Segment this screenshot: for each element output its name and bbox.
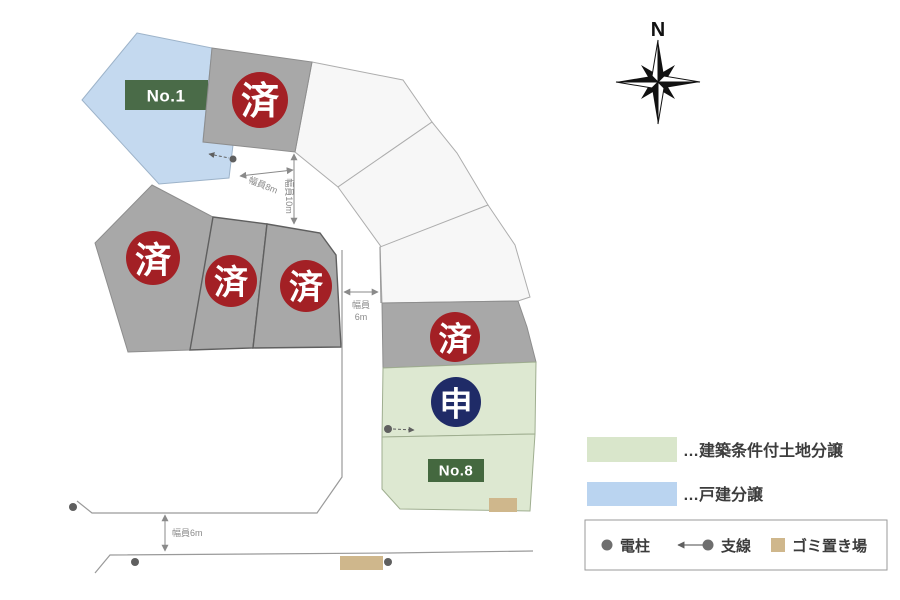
legend-wire-pole-icon [703,540,714,551]
dim-label-6m-bottom: 幅員6m [172,527,203,538]
legend-green-label: …建築条件付土地分譲 [683,441,844,460]
sold-label: 済 [214,264,249,302]
no1-label: No.1 [147,87,186,106]
utility-pole-icon [384,558,392,566]
legend-swatch-green [587,437,677,462]
legend-blue-label: …戸建分譲 [683,485,764,504]
sold-label: 済 [241,81,280,123]
compass-north-label: N [651,19,665,41]
utility-pole-icon [384,425,392,433]
legend-swatch-blue [587,482,677,506]
legend: …建築条件付土地分譲 …戸建分譲 電柱 支線 ゴミ置き場 [585,437,887,570]
compass-rose-icon [616,40,700,124]
legend-pole-label: 電柱 [620,537,650,555]
utility-pole-icon [131,558,139,566]
sold-badge-left-large: 済 [126,231,180,285]
legend-garbage-label: ゴミ置き場 [792,537,867,555]
sold-badge-mid-2: 済 [280,260,332,312]
applied-label: 申 [440,386,473,423]
legend-pole-icon [602,540,613,551]
applied-badge: 申 [431,377,481,427]
legend-garbage-icon [771,538,785,552]
dim-label-6m-mid-line2: 6m [355,312,368,322]
utility-pole-icon [230,156,237,163]
dim-label-10m: 幅員10m [284,178,295,214]
sold-badge-right: 済 [430,312,480,362]
utility-pole-icon [69,503,77,511]
legend-wire-label: 支線 [720,537,751,555]
plot-map-page: No.1 No.8 幅員8m 幅員10m 幅員 6m 幅員6m 済 済 済 済 [0,0,900,600]
sold-label: 済 [135,240,171,281]
plot-map: No.1 No.8 幅員8m 幅員10m 幅員 6m 幅員6m 済 済 済 済 [0,0,900,600]
dim-arrow-8m [240,170,293,176]
sold-label: 済 [289,269,324,307]
garbage-area-road [340,556,383,570]
sold-label: 済 [439,321,473,358]
sold-badge-mid-1: 済 [205,255,257,307]
no8-label: No.8 [439,463,474,480]
garbage-area-lot [489,498,517,512]
road-edge-bottom-lower [95,551,533,573]
dim-label-6m-mid-line1: 幅員 [352,299,370,310]
sold-badge-top: 済 [232,72,288,128]
dim-label-8m: 幅員8m [247,174,279,196]
